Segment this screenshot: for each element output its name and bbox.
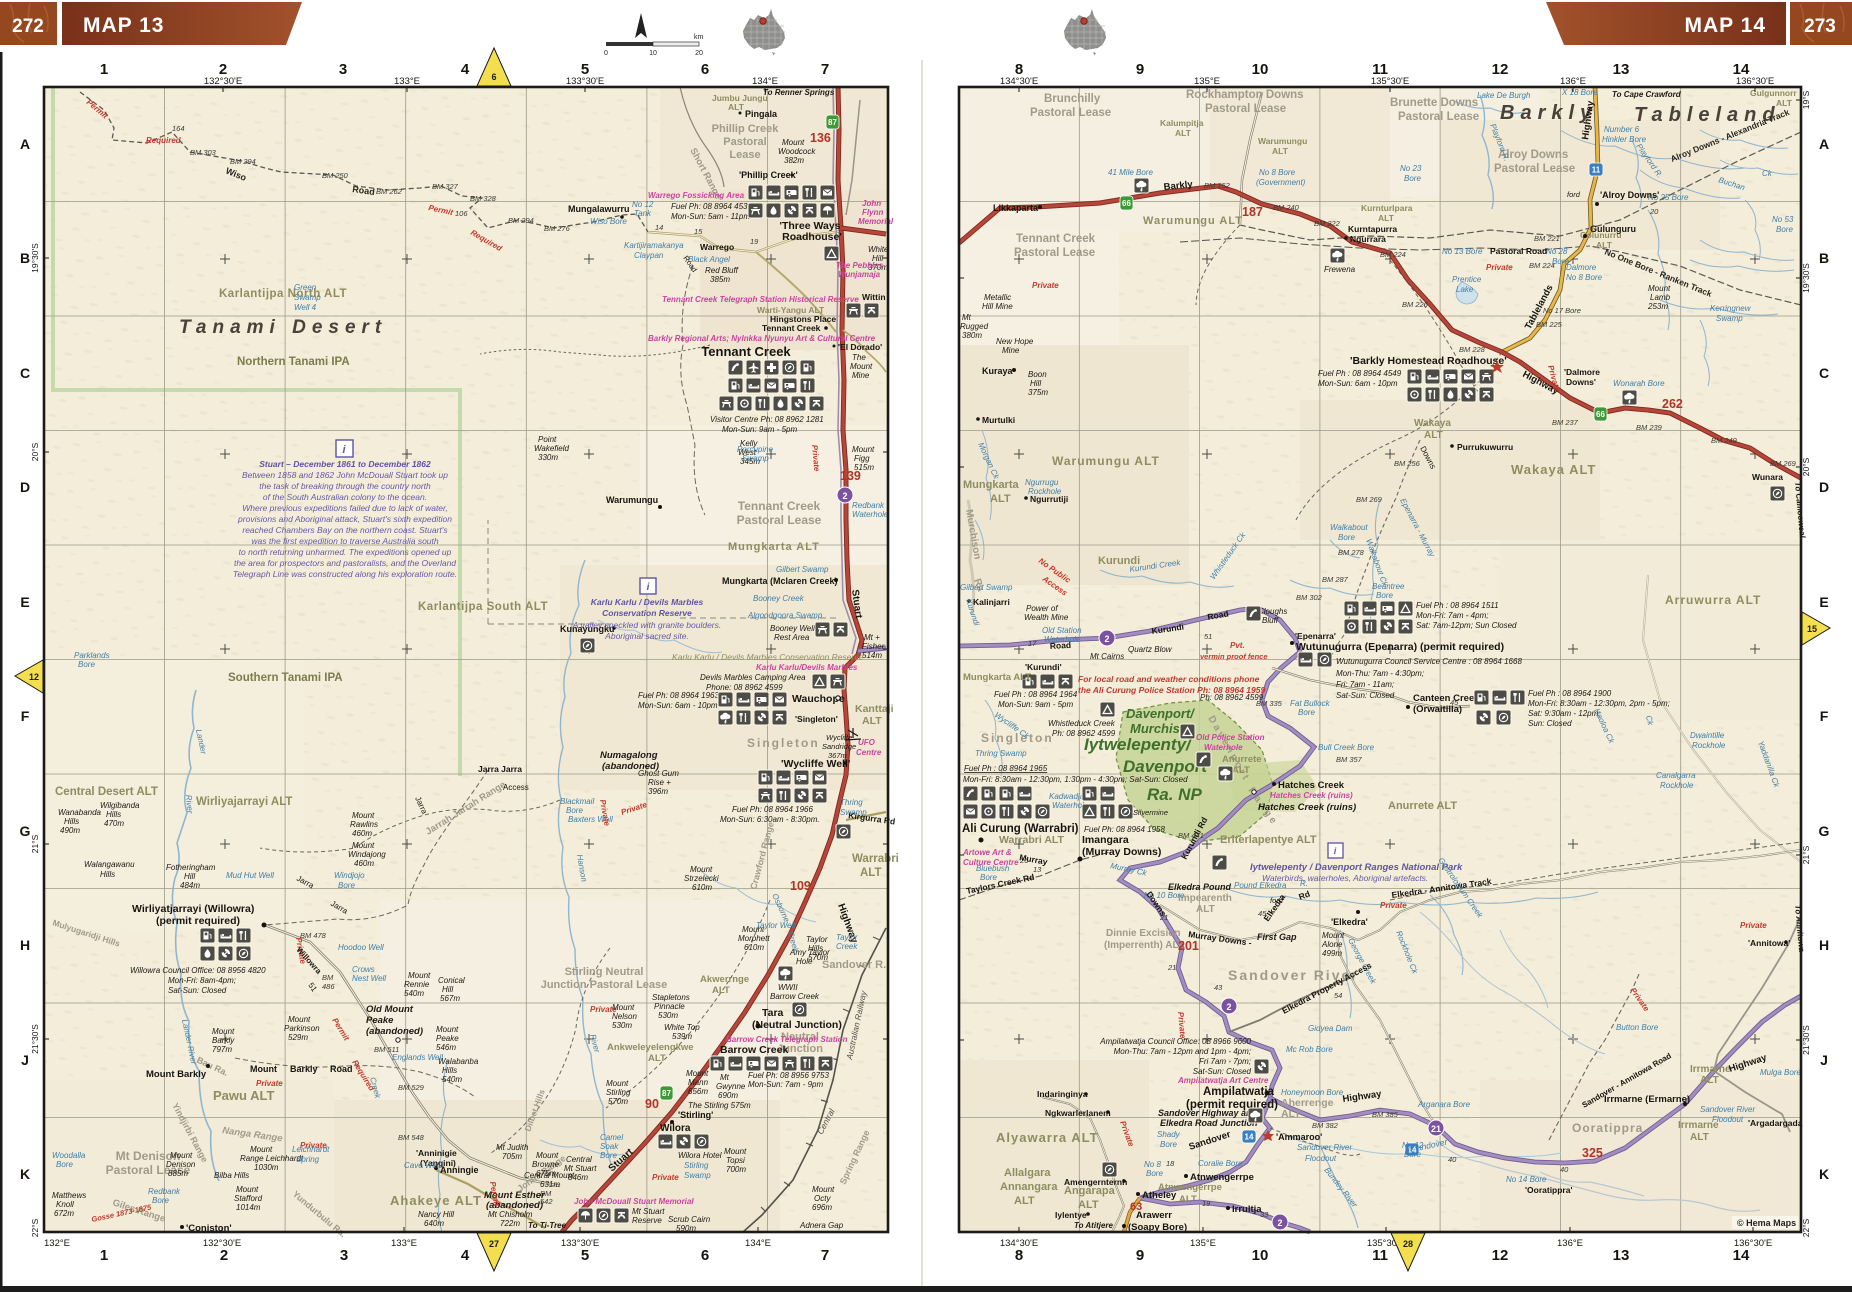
svg-text:Bore: Bore <box>600 1151 617 1160</box>
svg-text:Woodalla: Woodalla <box>52 1151 86 1160</box>
svg-text:Green: Green <box>294 283 317 292</box>
svg-text:12: 12 <box>1492 1247 1509 1264</box>
svg-text:8: 8 <box>1015 1247 1023 1264</box>
svg-text:Nancy Hill: Nancy Hill <box>418 1210 454 1219</box>
svg-text:Mon-Thu: 7am - 4:30pm;: Mon-Thu: 7am - 4:30pm; <box>1336 669 1424 678</box>
svg-text:Purrukuwurru: Purrukuwurru <box>1457 442 1513 452</box>
svg-text:Warrabri ALT: Warrabri ALT <box>999 834 1065 846</box>
svg-text:672m: 672m <box>54 1209 74 1218</box>
svg-text:BM 327: BM 327 <box>432 182 459 191</box>
svg-text:Mon-Fri: 8am-4pm;: Mon-Fri: 8am-4pm; <box>168 976 236 985</box>
svg-text:Boon: Boon <box>1028 370 1047 379</box>
svg-text:Thring Swamp: Thring Swamp <box>975 749 1027 758</box>
svg-text:656m: 656m <box>688 1087 708 1096</box>
svg-text:90: 90 <box>645 1097 659 1111</box>
svg-text:BM 256: BM 256 <box>1394 459 1421 468</box>
svg-text:Fri: 7am - 11am;: Fri: 7am - 11am; <box>1336 680 1394 689</box>
svg-text:1: 1 <box>100 1247 108 1264</box>
svg-text:Matthews: Matthews <box>52 1191 86 1200</box>
svg-text:Private: Private <box>1380 901 1407 910</box>
svg-text:Akwerrnge: Akwerrnge <box>700 974 749 985</box>
svg-text:Sun: Closed: Sun: Closed <box>1528 719 1572 728</box>
svg-text:G: G <box>20 823 31 839</box>
svg-text:Wunara: Wunara <box>1752 472 1783 482</box>
svg-text:Bore: Bore <box>1404 1150 1421 1159</box>
svg-text:Silvermine: Silvermine <box>1133 808 1168 817</box>
svg-text:132°30'E: 132°30'E <box>204 76 242 87</box>
svg-text:'Wycliffe Well': 'Wycliffe Well' <box>781 758 850 770</box>
svg-text:Karlu Karlu / Devils Marbles: Karlu Karlu / Devils Marbles <box>591 597 704 607</box>
svg-text:BM 250: BM 250 <box>322 171 349 180</box>
svg-text:2: 2 <box>220 1247 228 1264</box>
svg-text:Amengernternh: Amengernternh <box>1064 1177 1127 1187</box>
svg-text:Davenport/: Davenport/ <box>1126 706 1195 721</box>
svg-text:Warumungu: Warumungu <box>1258 136 1307 146</box>
svg-text:Dinnie Excision: Dinnie Excision <box>1106 928 1180 939</box>
svg-text:272: 272 <box>12 16 44 37</box>
svg-text:No 8 Bore: No 8 Bore <box>1259 168 1296 177</box>
svg-text:Mt: Mt <box>962 313 972 322</box>
svg-text:BM 222: BM 222 <box>1314 219 1341 228</box>
svg-text:Figg: Figg <box>854 454 870 463</box>
svg-text:Karlantijpa North ALT: Karlantijpa North ALT <box>219 288 347 300</box>
svg-text:Parkinson: Parkinson <box>284 1024 320 1033</box>
svg-text:Wutunugurra (Epenarra) (permit: Wutunugurra (Epenarra) (permit required) <box>1296 641 1504 653</box>
svg-text:Taylor Well: Taylor Well <box>756 921 795 930</box>
svg-text:Road: Road <box>330 1064 353 1074</box>
svg-text:Mt: Mt <box>720 1073 730 1082</box>
svg-text:ALT: ALT <box>860 867 882 879</box>
svg-text:Iytwelepenty / Davenport Range: Iytwelepenty / Davenport Ranges National… <box>1250 862 1463 873</box>
svg-text:Lake: Lake <box>1456 285 1474 294</box>
svg-text:Arawerr: Arawerr <box>1136 1210 1172 1221</box>
svg-text:Parklands: Parklands <box>74 651 110 660</box>
svg-text:Visitor Centre Ph: 08 8962 128: Visitor Centre Ph: 08 8962 1281 <box>710 415 824 424</box>
svg-text:19°30'S: 19°30'S <box>1801 263 1811 293</box>
svg-text:Mon-Sun: 6am - 10pm: Mon-Sun: 6am - 10pm <box>1318 379 1398 388</box>
svg-text:22°S: 22°S <box>30 1218 40 1237</box>
svg-text:Woodcock: Woodcock <box>778 147 816 156</box>
svg-text:Gulgunnorr: Gulgunnorr <box>1750 88 1797 98</box>
svg-text:Bore: Bore <box>1376 591 1393 600</box>
svg-text:John McDouall Stuart Memorial: John McDouall Stuart Memorial <box>574 1197 694 1206</box>
svg-text:529m: 529m <box>288 1033 308 1042</box>
svg-text:Sat-Sun: Closed: Sat-Sun: Closed <box>168 986 227 995</box>
svg-text:17: 17 <box>1028 639 1037 648</box>
svg-text:Hill: Hill <box>184 872 195 881</box>
svg-text:Mount: Mount <box>536 1151 559 1160</box>
svg-text:Hatches Creek (ruins): Hatches Creek (ruins) <box>1258 802 1356 813</box>
svg-text:Northern Tanami IPA: Northern Tanami IPA <box>237 356 350 368</box>
svg-text:Barrow Creek: Barrow Creek <box>720 1044 788 1056</box>
svg-text:Nest Well: Nest Well <box>352 974 386 983</box>
svg-text:Between 1858 and 1862 John McD: Between 1858 and 1862 John McDouall Stua… <box>242 470 448 480</box>
svg-text:BM 303: BM 303 <box>190 148 217 157</box>
svg-text:Denison: Denison <box>166 1160 196 1169</box>
svg-text:Conservation Reserve: Conservation Reserve <box>602 608 692 618</box>
svg-text:of the South Australian colony: of the South Australian colony to the oc… <box>263 492 427 502</box>
svg-text:4: 4 <box>461 61 470 78</box>
svg-text:27: 27 <box>489 1239 499 1249</box>
svg-text:Browne: Browne <box>532 1160 560 1169</box>
svg-text:Likkaparta: Likkaparta <box>993 203 1039 213</box>
svg-text:Hill Mine: Hill Mine <box>982 302 1013 311</box>
svg-text:to north returning unharmed. T: to north returning unharmed. The expedit… <box>239 547 452 557</box>
svg-text:ALT: ALT <box>1690 1132 1709 1143</box>
svg-text:Mount: Mount <box>852 445 875 454</box>
svg-text:Mount: Mount <box>606 1079 629 1088</box>
svg-text:Mount: Mount <box>408 971 431 980</box>
svg-text:WWII: WWII <box>778 983 798 992</box>
svg-text:10: 10 <box>1252 1247 1269 1264</box>
svg-text:Ngkwarlerlanem: Ngkwarlerlanem <box>1045 1108 1111 1118</box>
svg-text:325: 325 <box>1582 1146 1603 1160</box>
svg-text:Bore: Bore <box>56 1160 73 1169</box>
svg-text:Mount: Mount <box>288 1015 311 1024</box>
svg-text:Access: Access <box>503 783 529 792</box>
svg-text:To Cape Crawford: To Cape Crawford <box>1612 90 1682 99</box>
svg-text:(Neutral Junction): (Neutral Junction) <box>752 1019 842 1031</box>
svg-text:Rockhampton Downs: Rockhampton Downs <box>1186 89 1304 101</box>
svg-text:134°E: 134°E <box>752 76 778 87</box>
svg-text:Hill: Hill <box>442 985 453 994</box>
svg-text:John: John <box>862 199 881 208</box>
svg-text:BM 262: BM 262 <box>376 187 403 196</box>
svg-text:Power of: Power of <box>1026 604 1058 613</box>
svg-text:C: C <box>20 365 30 381</box>
svg-text:631m: 631m <box>540 1180 560 1189</box>
svg-text:'Phillip Creek': 'Phillip Creek' <box>739 170 798 180</box>
svg-text:the area for prospectors and p: the area for prospectors and pastoralist… <box>234 558 456 568</box>
svg-text:(abandoned): (abandoned) <box>366 1026 423 1037</box>
svg-text:No 53: No 53 <box>1772 215 1794 224</box>
svg-text:Warumungu: Warumungu <box>606 495 658 505</box>
svg-text:was the first expedition to tr: was the first expedition to traverse Aus… <box>251 536 439 546</box>
svg-text:Bore: Bore <box>566 806 583 815</box>
svg-text:Claypan: Claypan <box>634 251 664 260</box>
svg-text:BM 382: BM 382 <box>1312 1121 1339 1130</box>
svg-text:Conical: Conical <box>438 976 465 985</box>
svg-text:BM 294: BM 294 <box>230 157 256 166</box>
svg-text:H: H <box>20 937 30 953</box>
svg-text:Mon-Sun: 6am - 10pm: Mon-Sun: 6am - 10pm <box>638 701 718 710</box>
svg-text:River: River <box>184 794 195 814</box>
svg-text:Private: Private <box>1486 263 1513 272</box>
svg-text:Wilora Hotel: Wilora Hotel <box>678 1151 722 1160</box>
svg-text:Englands Well: Englands Well <box>392 1053 443 1062</box>
svg-text:28: 28 <box>1403 1239 1413 1249</box>
svg-text:Erlterlapentye ALT: Erlterlapentye ALT <box>1220 834 1317 846</box>
svg-text:BM 335: BM 335 <box>1256 699 1283 708</box>
svg-text:ALT: ALT <box>1281 1108 1301 1120</box>
svg-text:Sat-Sun: Closed: Sat-Sun: Closed <box>1193 1067 1252 1076</box>
svg-text:ALT: ALT <box>1196 904 1215 915</box>
svg-text:BM 224: BM 224 <box>1529 261 1555 270</box>
svg-text:The Pebbles: The Pebbles <box>836 261 884 270</box>
svg-text:'Annitowa': 'Annitowa' <box>1748 938 1790 948</box>
svg-text:Shady: Shady <box>1157 1130 1181 1139</box>
svg-text:9: 9 <box>1136 61 1144 78</box>
svg-text:BM 237: BM 237 <box>1552 418 1579 427</box>
svg-text:Rawlins: Rawlins <box>350 820 378 829</box>
svg-text:Tennant Creek Telegraph Statio: Tennant Creek Telegraph Station Historic… <box>662 295 859 304</box>
svg-text:570m: 570m <box>608 1097 628 1106</box>
svg-text:BM 228: BM 228 <box>1459 345 1486 354</box>
svg-text:Pastoral Road: Pastoral Road <box>1490 246 1547 256</box>
svg-text:Anurrete: Anurrete <box>1222 754 1262 765</box>
svg-text:Tennant Creek: Tennant Creek <box>1016 233 1096 245</box>
svg-text:Bore: Bore <box>1146 1169 1163 1178</box>
svg-text:21°S: 21°S <box>1801 845 1811 864</box>
svg-text:Karlu Karlu/Devils Marbles: Karlu Karlu/Devils Marbles <box>756 663 858 672</box>
svg-text:470m: 470m <box>104 819 124 828</box>
svg-text:ALT: ALT <box>1014 1195 1035 1207</box>
svg-text:Octy: Octy <box>814 1194 831 1203</box>
svg-text:Mon-Sun: 9am - 5pm: Mon-Sun: 9am - 5pm <box>998 700 1073 709</box>
svg-text:(permit required): (permit required) <box>156 915 240 927</box>
svg-text:Pvt.: Pvt. <box>1230 641 1245 650</box>
svg-text:21°S: 21°S <box>30 834 40 853</box>
svg-text:Mungalawurru: Mungalawurru <box>568 204 630 214</box>
svg-text:133°E: 133°E <box>394 76 420 87</box>
svg-text:19: 19 <box>750 237 759 246</box>
svg-text:Mount: Mount <box>236 1185 259 1194</box>
svg-text:Wanabanda: Wanabanda <box>58 808 102 817</box>
svg-text:Stirling: Stirling <box>684 1161 709 1170</box>
svg-text:Hoodoo Well: Hoodoo Well <box>338 943 384 952</box>
svg-text:i: i <box>647 582 650 593</box>
svg-text:20: 20 <box>1649 207 1659 216</box>
svg-text:Arruwurra ALT: Arruwurra ALT <box>1665 593 1761 607</box>
svg-text:Stirling: Stirling <box>606 1088 631 1097</box>
svg-text:4: 4 <box>461 1247 470 1264</box>
svg-text:Mount: Mount <box>1648 284 1671 293</box>
svg-text:Tennant Creek: Tennant Creek <box>701 344 791 359</box>
svg-text:Gilbert Swamp: Gilbert Swamp <box>776 565 829 574</box>
svg-text:Sandover River: Sandover River <box>1297 1143 1352 1152</box>
svg-text:Phillip Creek: Phillip Creek <box>712 123 780 135</box>
svg-text:330m: 330m <box>538 453 558 462</box>
svg-text:The: The <box>852 353 866 362</box>
svg-text:Frewena: Frewena <box>1324 265 1356 274</box>
svg-text:White: White <box>868 245 889 254</box>
svg-text:Mon-Sun: 9am - 5pm: Mon-Sun: 9am - 5pm <box>722 425 797 434</box>
svg-text:6: 6 <box>491 72 496 82</box>
svg-text:Singleton: Singleton <box>747 736 820 750</box>
svg-text:Bore: Bore <box>1776 225 1793 234</box>
svg-text:540m: 540m <box>404 989 424 998</box>
svg-text:109: 109 <box>790 879 811 893</box>
svg-text:ALT: ALT <box>990 493 1011 505</box>
svg-text:Barrow Creek: Barrow Creek <box>770 992 820 1001</box>
svg-text:Stapletons: Stapletons <box>652 993 690 1002</box>
svg-text:Reserve: Reserve <box>632 1216 662 1225</box>
svg-text:Ampilatwatja Council Office: 0: Ampilatwatja Council Office: 08 8966 960… <box>1099 1037 1251 1046</box>
svg-text:Pawu ALT: Pawu ALT <box>213 1088 274 1103</box>
svg-text:Metallic: Metallic <box>984 293 1011 302</box>
svg-text:Pastoral Lease: Pastoral Lease <box>1205 103 1286 115</box>
svg-text:Wilgibanda: Wilgibanda <box>100 801 140 810</box>
svg-text:Ahakeye ALT: Ahakeye ALT <box>390 1193 482 1208</box>
svg-text:BM 302: BM 302 <box>1296 593 1323 602</box>
svg-text:Taylor: Taylor <box>836 933 858 942</box>
svg-text:Morphett: Morphett <box>738 934 770 943</box>
svg-text:136: 136 <box>810 131 831 145</box>
svg-text:ALT: ALT <box>1179 1194 1197 1205</box>
svg-text:First Gap: First Gap <box>1257 932 1297 942</box>
svg-text:B: B <box>1819 250 1829 266</box>
svg-text:'Alroy Downs': 'Alroy Downs' <box>1600 190 1659 200</box>
svg-text:E: E <box>1819 594 1828 610</box>
svg-text:Pastoral Lease: Pastoral Lease <box>737 513 822 527</box>
svg-text:11: 11 <box>1372 1247 1388 1264</box>
svg-text:Karlantijpa South ALT: Karlantijpa South ALT <box>418 601 548 613</box>
svg-text:19°30'S: 19°30'S <box>30 243 40 273</box>
svg-text:Southern Tanami IPA: Southern Tanami IPA <box>228 672 343 684</box>
svg-text:BM 226: BM 226 <box>1402 300 1429 309</box>
svg-text:Floodout: Floodout <box>1305 1154 1337 1163</box>
svg-text:Fuel Ph : 08 8964 1511: Fuel Ph : 08 8964 1511 <box>1416 601 1499 610</box>
svg-text:Adnera Gap: Adnera Gap <box>799 1221 844 1230</box>
svg-text:Mulga Bore: Mulga Bore <box>1760 1068 1801 1077</box>
svg-text:BM 357: BM 357 <box>1336 755 1363 764</box>
svg-text:G: G <box>1819 823 1830 839</box>
svg-text:Redbank: Redbank <box>852 501 885 510</box>
svg-text:Anningie: Anningie <box>440 1165 479 1175</box>
svg-text:(Imperrenth) ALT: (Imperrenth) ALT <box>1104 940 1184 951</box>
svg-text:Pastoral: Pastoral <box>723 136 766 148</box>
svg-text:885m: 885m <box>168 1169 188 1178</box>
svg-text:BM: BM <box>322 973 334 982</box>
svg-text:Waterhole: Waterhole <box>1204 743 1243 752</box>
svg-text:Mungkarta ALT: Mungkarta ALT <box>728 541 820 553</box>
svg-text:Wakaya: Wakaya <box>1414 418 1451 429</box>
svg-text:530m: 530m <box>658 1011 678 1020</box>
svg-text:13: 13 <box>1033 865 1042 874</box>
svg-text:Mount: Mount <box>352 811 375 820</box>
svg-text:'Argadargada: 'Argadargada <box>1748 1118 1803 1128</box>
svg-text:Ra. NP: Ra. NP <box>1147 785 1202 804</box>
svg-text:No 28: No 28 <box>1546 247 1568 256</box>
svg-text:Warrego Fossicking Area: Warrego Fossicking Area <box>648 191 745 200</box>
svg-text:Elkedra Road Junction: Elkedra Road Junction <box>1160 1118 1258 1128</box>
svg-text:Sat-Sun: Closed: Sat-Sun: Closed <box>1336 691 1395 700</box>
svg-text:D: D <box>20 479 30 495</box>
svg-text:136°E: 136°E <box>1557 1238 1583 1249</box>
svg-text:Mt +: Mt + <box>864 633 880 642</box>
svg-text:Wakefield: Wakefield <box>534 444 570 453</box>
svg-text:Rockhole: Rockhole <box>1692 741 1726 750</box>
svg-text:Wonarah Bore: Wonarah Bore <box>1613 379 1665 388</box>
svg-text:Mon-Fri: 7am - 4pm;: Mon-Fri: 7am - 4pm; <box>1416 611 1488 620</box>
svg-text:Creek: Creek <box>836 942 858 951</box>
svg-text:No 17 Bore: No 17 Bore <box>1543 306 1581 315</box>
svg-text:Swamp: Swamp <box>1716 314 1743 323</box>
svg-text:Pastoral Lease: Pastoral Lease <box>1030 107 1111 119</box>
svg-text:Artowe Art &: Artowe Art & <box>962 848 1012 857</box>
svg-text:'Elkedra': 'Elkedra' <box>1331 917 1368 927</box>
svg-text:BM 529: BM 529 <box>398 1083 425 1092</box>
svg-text:Hill: Hill <box>1030 379 1041 388</box>
svg-text:385m: 385m <box>710 275 730 284</box>
svg-text:Alyawarra ALT: Alyawarra ALT <box>996 1130 1099 1145</box>
svg-text:486: 486 <box>322 982 335 991</box>
svg-text:Mann: Mann <box>688 1078 709 1087</box>
svg-text:Pingala: Pingala <box>745 109 778 119</box>
svg-text:Irrmarne (Ermarne): Irrmarne (Ermarne) <box>1604 1094 1690 1105</box>
svg-text:Arganara Bore: Arganara Bore <box>1417 1100 1471 1109</box>
svg-text:Fuel Ph: 08 8964 4539: Fuel Ph: 08 8964 4539 <box>671 202 753 211</box>
svg-text:1030m: 1030m <box>254 1163 279 1172</box>
svg-text:164: 164 <box>172 124 185 133</box>
svg-text:Crows: Crows <box>352 965 375 974</box>
svg-text:Anurrete ALT: Anurrete ALT <box>1388 800 1457 812</box>
svg-text:Private: Private <box>256 1079 283 1088</box>
svg-text:21: 21 <box>1159 913 1168 922</box>
svg-text:Devils Marbles Camping Area: Devils Marbles Camping Area <box>700 673 806 682</box>
svg-text:Private: Private <box>1740 921 1767 930</box>
svg-text:Flynn: Flynn <box>862 208 883 217</box>
svg-text:Ghost Gum: Ghost Gum <box>638 769 679 778</box>
svg-text:Ck: Ck <box>1762 169 1773 178</box>
svg-text:White Top: White Top <box>664 1023 700 1032</box>
svg-text:10: 10 <box>1252 61 1269 78</box>
svg-text:722m: 722m <box>500 1219 520 1228</box>
svg-text:640m: 640m <box>424 1219 444 1228</box>
svg-text:Hills: Hills <box>106 810 121 819</box>
svg-text:Mount: Mount <box>850 362 873 371</box>
svg-text:Wycliffe: Wycliffe <box>826 733 852 742</box>
svg-text:Mon-Sun: 5am - 11pm: Mon-Sun: 5am - 11pm <box>671 212 750 221</box>
svg-text:Mount: Mount <box>1322 931 1345 940</box>
svg-text:540m: 540m <box>442 1075 462 1084</box>
svg-text:Gilbert Swamp: Gilbert Swamp <box>960 583 1013 592</box>
svg-text:(Orwaitilla): (Orwaitilla) <box>1413 704 1462 715</box>
svg-text:Quartz Blow: Quartz Blow <box>1128 645 1173 654</box>
svg-text:To Renner Springs: To Renner Springs <box>763 88 835 97</box>
svg-text:E: E <box>20 594 29 610</box>
svg-text:Soak: Soak <box>600 1142 619 1151</box>
svg-text:499m: 499m <box>1322 949 1342 958</box>
svg-text:Taylor: Taylor <box>806 935 828 944</box>
svg-text:ALT: ALT <box>862 715 882 727</box>
svg-text:Mount: Mount <box>724 1147 747 1156</box>
svg-text:ALT: ALT <box>1378 213 1395 223</box>
svg-text:Spring: Spring <box>296 1155 320 1164</box>
svg-text:Mungkarta: Mungkarta <box>963 479 1020 491</box>
svg-text:40: 40 <box>1560 1165 1569 1174</box>
svg-text:© Hema Maps: © Hema Maps <box>1737 1218 1796 1228</box>
svg-text:Pastoral Lease: Pastoral Lease <box>1494 163 1575 175</box>
svg-text:Hills: Hills <box>808 944 823 953</box>
svg-text:Mc Rob Bore: Mc Rob Bore <box>1286 1045 1333 1054</box>
svg-text:Mount: Mount <box>686 1069 709 1078</box>
svg-text:136°E: 136°E <box>1560 76 1586 87</box>
svg-text:87: 87 <box>828 118 837 127</box>
svg-text:610m: 610m <box>744 943 764 952</box>
svg-text:BM 224: BM 224 <box>1380 250 1406 259</box>
svg-text:km: km <box>694 34 704 41</box>
svg-text:Swamp: Swamp <box>742 454 769 463</box>
svg-text:136°30'E: 136°30'E <box>1736 76 1774 87</box>
svg-text:273: 273 <box>1804 16 1836 37</box>
svg-text:3: 3 <box>339 61 347 78</box>
svg-text:Algoodgoora Swamp: Algoodgoora Swamp <box>747 611 823 620</box>
svg-text:Brunette Downs: Brunette Downs <box>1390 97 1478 109</box>
svg-text:Mount: Mount <box>782 138 805 147</box>
svg-text:Wunjamaja: Wunjamaja <box>838 270 881 279</box>
svg-text:Irrmarne: Irrmarne <box>1690 1064 1731 1075</box>
